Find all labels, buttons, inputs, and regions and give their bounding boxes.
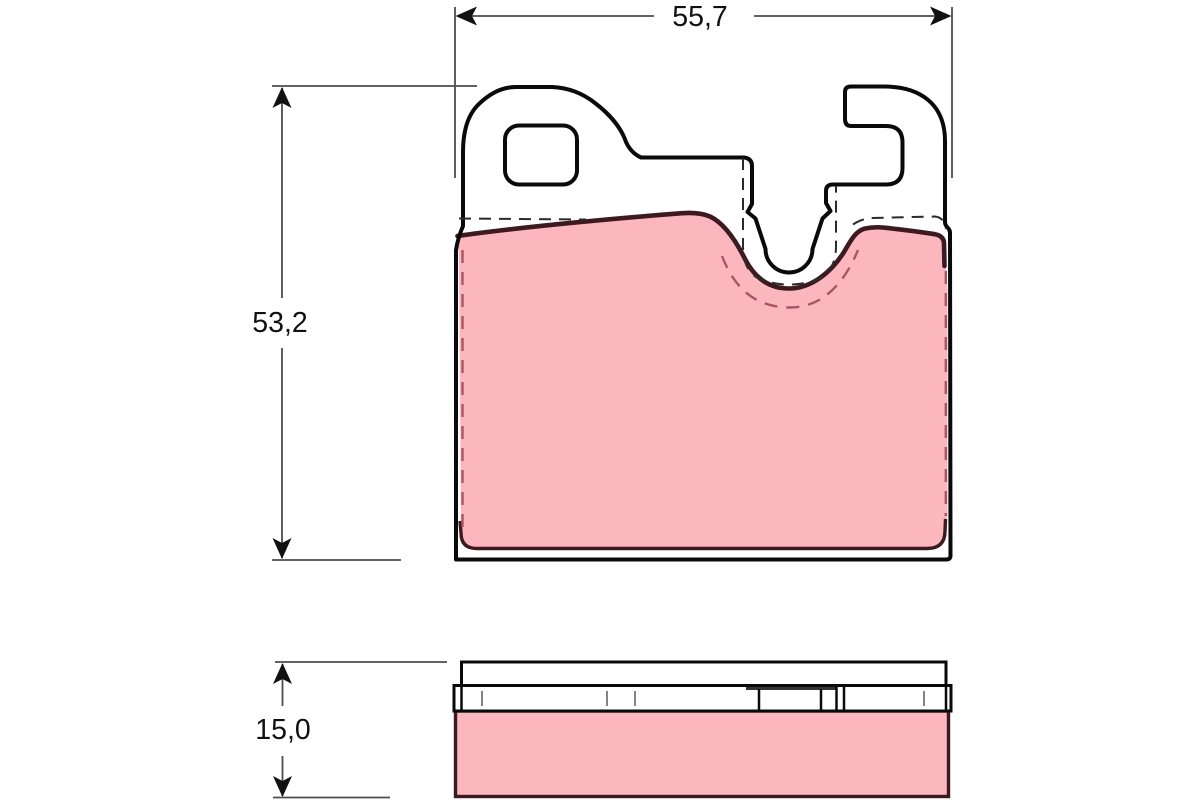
- svg-text:15,0: 15,0: [255, 714, 310, 746]
- svg-text:53,2: 53,2: [252, 307, 307, 339]
- svg-text:55,7: 55,7: [672, 1, 727, 33]
